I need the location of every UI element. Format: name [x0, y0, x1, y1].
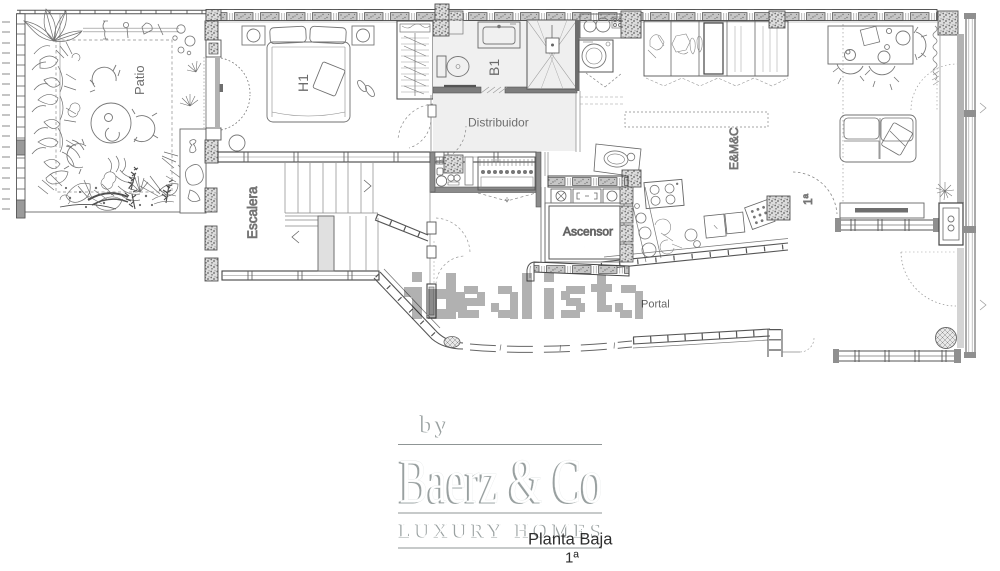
svg-text:Escalera: Escalera [245, 186, 260, 239]
svg-text:H1: H1 [295, 74, 311, 92]
svg-text:by: by [421, 412, 451, 438]
svg-text:E&M&C: E&M&C [727, 127, 741, 170]
svg-text:Baerz & Co: Baerz & Co [400, 447, 603, 517]
svg-text:1ª: 1ª [801, 193, 815, 205]
svg-text:Planta Baja: Planta Baja [528, 531, 613, 549]
svg-text:1ª: 1ª [565, 550, 579, 567]
svg-text:Portal: Portal [641, 299, 670, 311]
svg-text:Distribuidor: Distribuidor [468, 116, 529, 130]
svg-text:Ascensor: Ascensor [563, 225, 613, 239]
svg-text:B1: B1 [486, 59, 502, 76]
svg-text:Patio: Patio [132, 65, 147, 95]
